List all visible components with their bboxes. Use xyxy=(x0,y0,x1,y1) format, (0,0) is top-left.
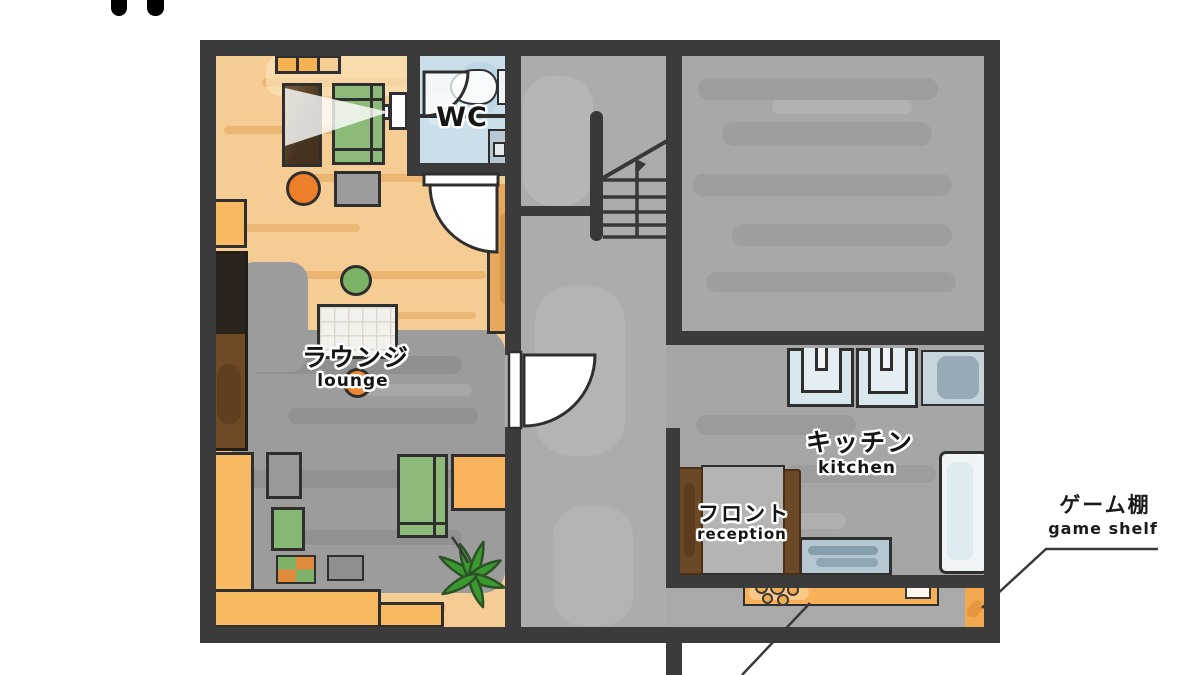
room-texture xyxy=(706,272,956,292)
faucet xyxy=(880,348,893,371)
wall-outer-top xyxy=(200,40,1000,56)
cushion-gray xyxy=(327,555,364,581)
sofa-armrest-line xyxy=(335,98,382,101)
projector-box xyxy=(389,92,408,130)
cushion-checkered xyxy=(276,555,316,584)
game-shelf-label-en: game shelf xyxy=(1048,519,1158,538)
mat-blob xyxy=(937,356,979,399)
bench-three-seat xyxy=(275,55,341,74)
hall-texture xyxy=(535,286,625,456)
bench-seat xyxy=(299,58,320,71)
reception-label-ja: フロント xyxy=(698,498,790,528)
room-texture xyxy=(692,174,952,196)
wood-grain xyxy=(230,224,360,232)
game-shelf xyxy=(965,582,986,628)
counter-streak xyxy=(808,546,878,555)
room-texture xyxy=(772,100,912,114)
shelf-streak xyxy=(965,598,986,620)
lounge-label-ja: ラウンジ xyxy=(302,338,410,374)
kitchen-sink-unit xyxy=(787,348,854,407)
sofa-armrest-line xyxy=(400,522,445,525)
kitchen-label-ja: キッチン xyxy=(806,423,914,459)
reception-label-en: reception xyxy=(697,525,787,543)
wall-kitchen-bottom xyxy=(666,575,1000,588)
hall-texture xyxy=(523,76,593,206)
pouf-orange xyxy=(286,171,321,206)
pouf-green xyxy=(340,265,372,296)
lounge-label-en: lounge xyxy=(317,371,388,391)
wall-hall-right-upper xyxy=(666,40,682,345)
stove-burner xyxy=(777,594,789,606)
cropped-title-glyph xyxy=(111,0,127,16)
wc-label: WC xyxy=(436,102,488,133)
cropped-title-glyph xyxy=(147,0,164,16)
shelf-grain xyxy=(217,364,241,424)
wall-stub-below xyxy=(666,640,682,675)
bench-seat xyxy=(320,58,338,71)
wall-hall-left-lower xyxy=(505,427,521,643)
bench-bottom xyxy=(213,589,381,628)
drying-mat xyxy=(921,350,987,406)
refrigerator xyxy=(939,451,989,574)
game-shelf-label-ja: ゲーム棚 xyxy=(1059,489,1150,519)
wall-stair-stub xyxy=(520,206,594,216)
counter-streak xyxy=(816,558,878,567)
counter-blue xyxy=(799,537,892,576)
game-shelf-leader-line xyxy=(982,549,1158,608)
kitchen-sink-unit xyxy=(856,348,918,408)
bench-seat xyxy=(278,58,299,71)
wall-hall-left-upper xyxy=(505,40,521,355)
room-texture xyxy=(732,224,952,246)
cushion-green xyxy=(271,507,305,551)
desk-grain xyxy=(684,483,695,557)
toilet-bowl xyxy=(450,69,498,105)
stove-burner xyxy=(762,593,773,604)
cushion-gray xyxy=(266,452,302,499)
wall-outer-bottom xyxy=(200,627,1000,643)
wall-wc-left xyxy=(407,40,420,176)
room-texture xyxy=(698,78,938,100)
shelf-dark-top xyxy=(211,254,245,334)
wall-outer-left xyxy=(200,40,216,643)
sofa-backrest-line xyxy=(370,86,373,162)
sofa-bottom xyxy=(397,454,448,538)
fridge-wash xyxy=(947,462,973,560)
floorplan-canvas: WC ラウンジ lounge キッチン kitchen フロント recepti… xyxy=(0,0,1200,675)
upper-right-room-floor xyxy=(682,56,984,331)
wall-upper-room-bottom xyxy=(666,331,1000,345)
cushion-gray xyxy=(334,171,381,207)
wall-hall-right-lower xyxy=(666,428,680,588)
kitchen-label-en: kitchen xyxy=(818,458,896,478)
room-texture xyxy=(722,122,932,146)
sofa-armrest-line xyxy=(335,148,382,151)
sofa-top xyxy=(332,83,385,165)
hall-texture xyxy=(553,506,633,626)
projector-nub xyxy=(382,104,391,120)
bench-bottom-ext xyxy=(378,602,444,628)
hallway-floor xyxy=(505,56,666,627)
rug-texture xyxy=(288,408,478,424)
faucet xyxy=(815,348,828,371)
projector-screen xyxy=(282,83,322,167)
wall-wc-bottom xyxy=(407,163,521,176)
